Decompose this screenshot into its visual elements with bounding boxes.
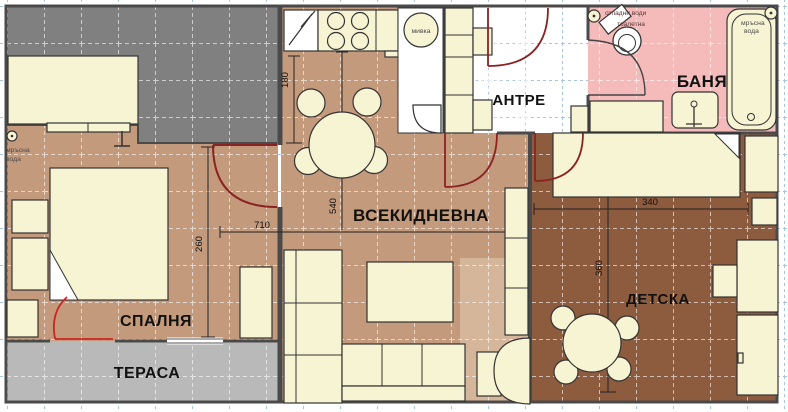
bedroom-terrace-window [167,338,223,345]
kitchen-sink-label: мивка [412,28,431,35]
bathroom-counter [590,101,663,132]
kids-desk [737,240,778,312]
floor-plan: СПАЛНЯ ТЕРАСА ВСЕКИДНЕВНА АНТРЕ БАНЯ ДЕТ… [0,0,788,412]
bath-toilet-label: тоалетна [617,21,645,28]
bookshelf [505,188,528,335]
bath-waste-water-label: вода [744,28,759,35]
dimension-label-360: 360 [594,260,605,276]
dimension-label-540: 540 [328,198,339,214]
hall-cabinet-small [473,100,492,130]
hall-corner-cabinet [571,106,588,132]
room-label-hall: АНТРЕ [492,92,545,109]
dimension-label-260: 260 [194,236,205,252]
dining-table [309,112,375,178]
hall-cabinet-column [445,8,473,133]
water-symbol-dot [593,15,596,18]
floor-plan-drawing: СПАЛНЯ ТЕРАСА ВСЕКИДНЕВНА АНТРЕ БАНЯ ДЕТ… [0,0,788,412]
bedroom-nightstand [12,200,48,233]
coffee-table [367,262,453,322]
bedroom-nightstand [12,238,48,290]
room-label-living: ВСЕКИДНЕВНА [353,206,489,225]
kids-table [563,314,621,372]
room-label-kids: ДЕТСКА [626,291,690,308]
room-label-terrace: ТЕРАСА [114,365,181,382]
bath-sewage-label: отпадни води [605,10,647,17]
dimension-label-340: 340 [642,197,658,208]
waste-water-symbol-dot [11,135,14,138]
sofa-front [342,386,465,401]
kids-wardrobe-handle [738,353,743,363]
bedroom-wardrobe [8,56,138,124]
room-label-bedroom: СПАЛНЯ [120,313,192,330]
dining-chair [353,88,381,116]
living-wardrobe [284,250,342,403]
bedroom-bench [7,300,38,337]
counter-handle [385,51,399,57]
bedroom-cabinet [240,267,272,338]
bathroom-sink [672,92,718,128]
kids-nightstand [745,136,778,192]
stove-burner-icon [352,33,369,50]
sofa [342,344,465,386]
bedroom-waste-water-label: вода [6,156,21,163]
dimension-label-180: 180 [280,72,291,88]
stove-burner-icon [328,13,345,30]
room-label-bathroom: БАНЯ [677,72,727,91]
kids-cabinet-small [752,198,777,225]
stove-burner-icon [328,33,345,50]
kids-desk-chair [713,265,737,297]
bath-waste-water-label: мръсна [741,20,765,27]
bedroom-waste-water-label: мръсна [6,147,30,154]
water-symbol-dot [770,12,773,15]
double-bed [50,168,168,300]
dining-chair [297,89,325,117]
hall-cabinet-small [473,28,492,55]
stove-burner-icon [352,13,369,30]
kids-bed [553,133,740,197]
dimension-label-710: 710 [254,220,270,231]
